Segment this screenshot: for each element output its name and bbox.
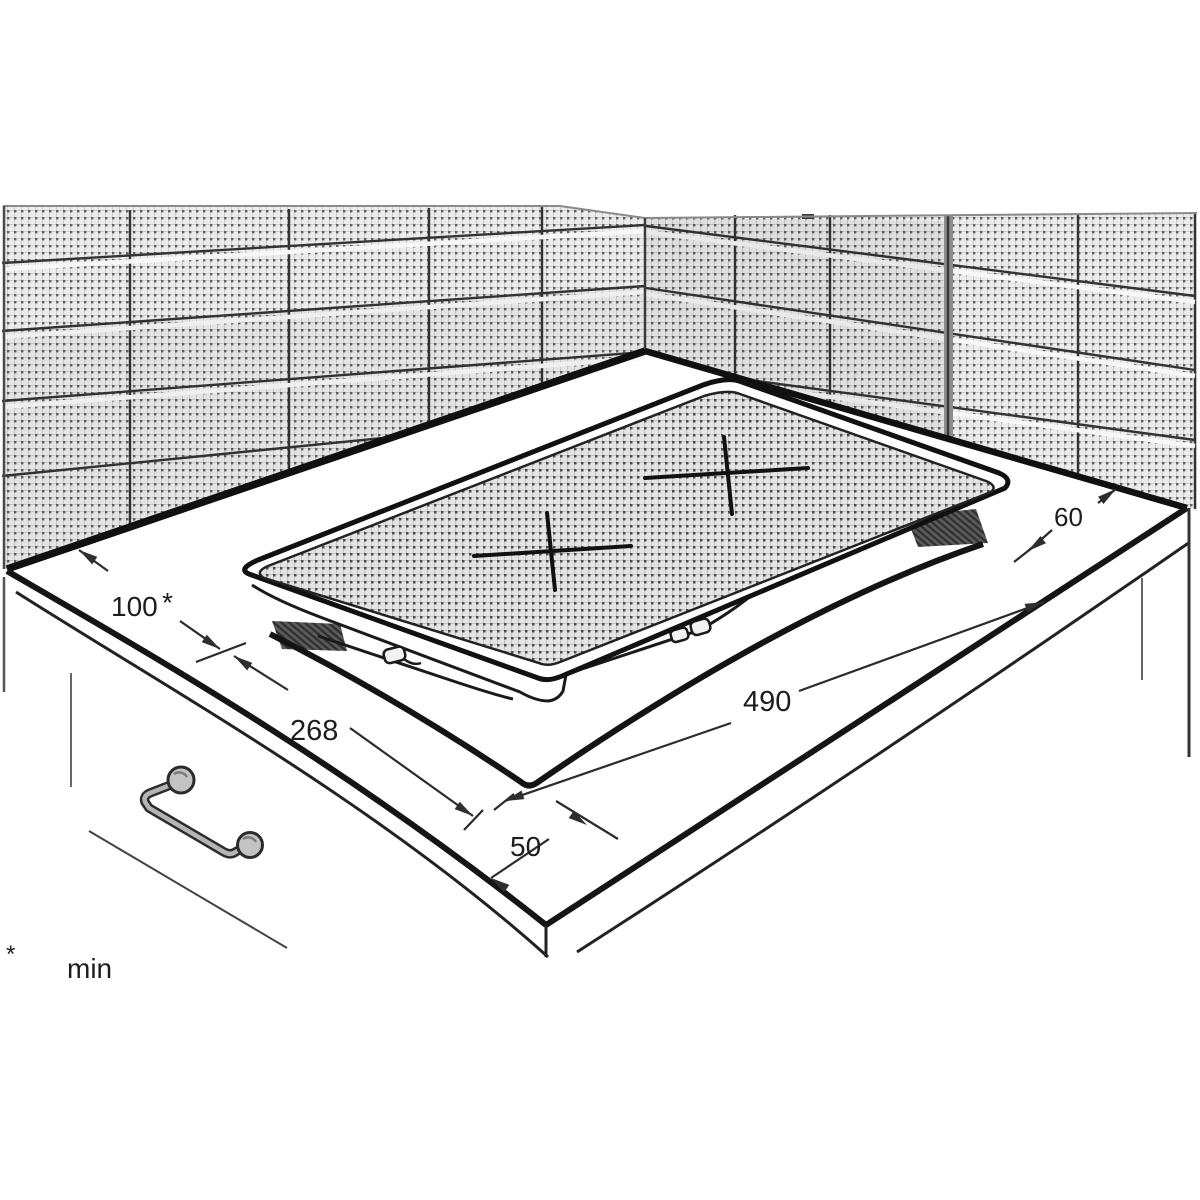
svg-text:60: 60 <box>1054 502 1083 532</box>
svg-text:*: * <box>6 941 15 968</box>
svg-text:50: 50 <box>510 831 541 862</box>
svg-text:490: 490 <box>743 686 791 718</box>
svg-text:268: 268 <box>290 715 338 747</box>
svg-text:*: * <box>162 587 173 618</box>
svg-text:100: 100 <box>111 591 158 622</box>
svg-text:min: min <box>67 953 112 984</box>
